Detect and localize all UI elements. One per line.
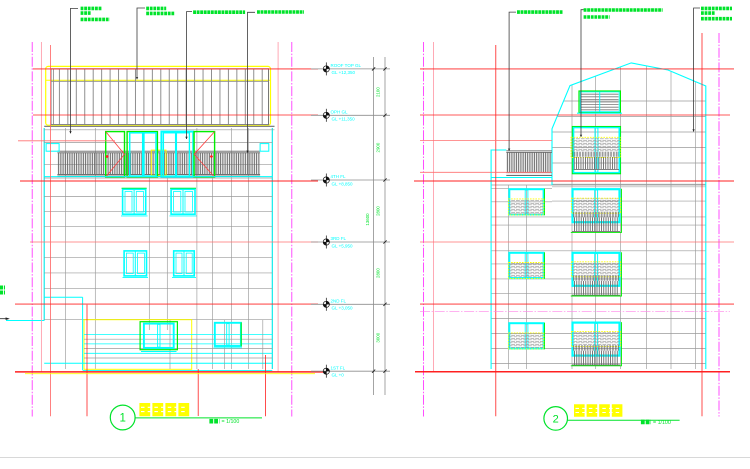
svg-text:ROOF TOP GL: ROOF TOP GL — [331, 63, 362, 68]
svg-text:OPH GL: OPH GL — [331, 110, 349, 115]
svg-text:1ST FL: 1ST FL — [331, 365, 346, 370]
svg-text:2800: 2800 — [376, 206, 381, 216]
svg-text:GL +11,350: GL +11,350 — [332, 117, 356, 122]
svg-text:4TH FL: 4TH FL — [331, 174, 347, 179]
svg-text:GL +8,850: GL +8,850 — [332, 181, 353, 186]
svg-text:2900: 2900 — [376, 142, 381, 152]
svg-text:GL +12,350: GL +12,350 — [332, 70, 356, 75]
svg-text:= 1/100: = 1/100 — [653, 420, 671, 426]
svg-text:= 1/100: = 1/100 — [222, 419, 240, 425]
svg-text:3RD FL: 3RD FL — [331, 236, 347, 241]
svg-text:13600: 13600 — [365, 213, 370, 226]
svg-text:3000: 3000 — [376, 332, 381, 342]
svg-text:2800: 2800 — [376, 268, 381, 278]
svg-text:GL +5,950: GL +5,950 — [332, 243, 353, 248]
svg-text:2100: 2100 — [376, 87, 381, 97]
svg-text:2ND FL: 2ND FL — [331, 299, 347, 304]
svg-text:1: 1 — [119, 413, 125, 425]
svg-text:GL +0: GL +0 — [332, 373, 345, 378]
svg-text:GL +3,050: GL +3,050 — [332, 306, 353, 311]
svg-text:2: 2 — [553, 413, 559, 425]
